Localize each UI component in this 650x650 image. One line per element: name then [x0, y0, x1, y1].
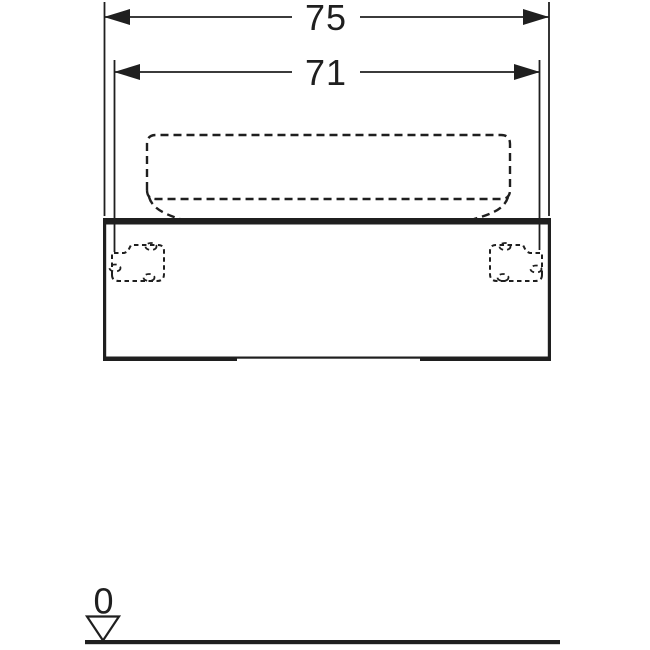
dim-75-label: 75 [305, 0, 347, 38]
dim-71-label: 71 [305, 52, 347, 93]
bracket-right-slot-bottom [498, 274, 509, 281]
bracket-right-slot-side [531, 266, 542, 273]
datum-triangle-icon [87, 617, 119, 641]
bracket-left-outline [112, 245, 164, 281]
elevation-drawing: 75 71 [0, 0, 650, 650]
cabinet-bottom-edge-right [420, 357, 551, 362]
mounting-bracket-right [490, 243, 542, 281]
dim-75-arrowhead-right-icon [523, 9, 549, 25]
dim-71-arrowhead-left-icon [114, 64, 140, 80]
dim-75-arrowhead-left-icon [104, 9, 130, 25]
cabinet-body [103, 218, 551, 361]
bracket-right-outline [490, 245, 542, 281]
cabinet-bottom-edge-left [103, 357, 237, 362]
datum-marker: 0 [85, 581, 560, 645]
washbasin-foot-right [474, 197, 508, 219]
washbasin-outline [147, 135, 510, 219]
cabinet-right-edge [548, 218, 551, 361]
washbasin-foot-left [149, 197, 180, 219]
washbasin-bowl-outline [147, 135, 510, 199]
cabinet-bottom-edge-recessed-middle [237, 357, 420, 359]
datum-level-label: 0 [93, 581, 114, 622]
cabinet-top-edge [103, 218, 551, 225]
technical-drawing-canvas: 75 71 [0, 0, 650, 650]
dimension-total-width: 75 [104, 0, 549, 216]
cabinet-left-edge [103, 218, 106, 361]
dim-71-arrowhead-right-icon [514, 64, 540, 80]
floor-line [85, 640, 560, 644]
mounting-bracket-left [110, 243, 165, 281]
bracket-left-slot-bottom [144, 274, 155, 281]
